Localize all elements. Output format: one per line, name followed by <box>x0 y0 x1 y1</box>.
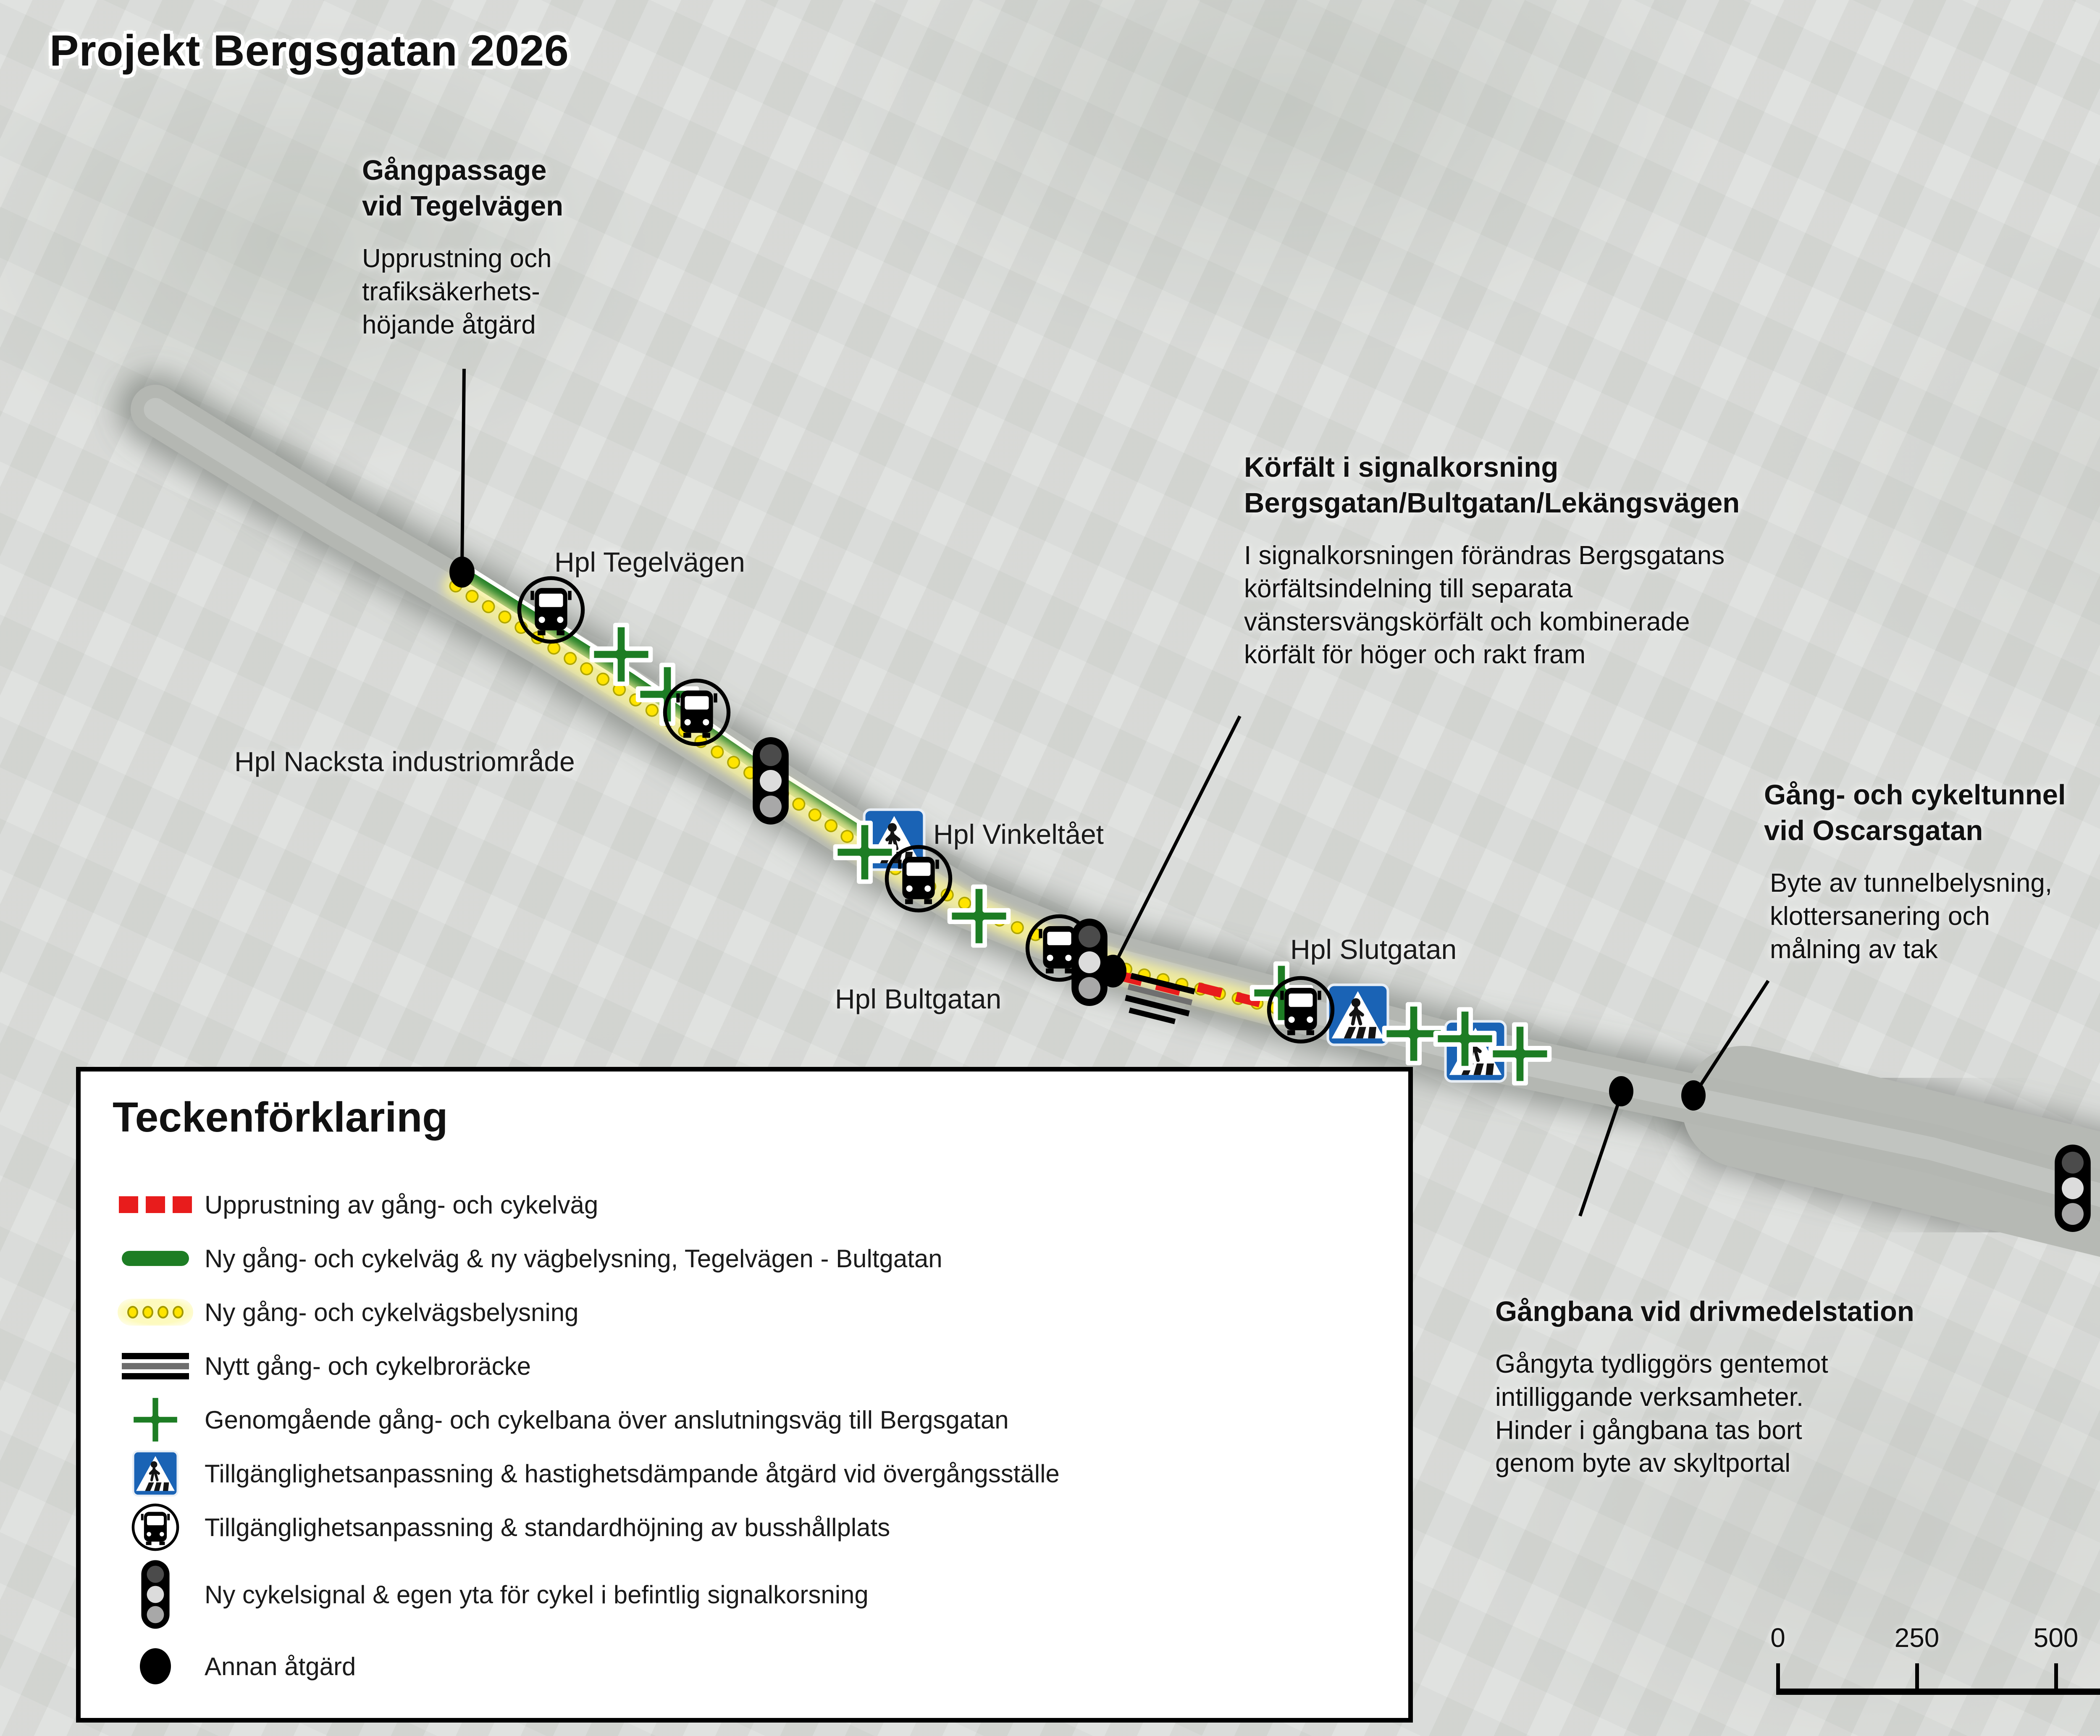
red-dashed-line-symbol <box>106 1196 205 1213</box>
railing-lines-symbol <box>106 1353 205 1379</box>
scale-tick <box>1776 1663 1780 1692</box>
annotation-gangbana: Gångbana vid drivmedelstation Gångyta ty… <box>1495 1286 1914 1488</box>
legend-item-label: Ny gång- och cykelvägsbelysning <box>205 1298 578 1327</box>
annotation-body: Gångyta tydliggörs gentemot intilliggand… <box>1495 1348 1914 1480</box>
project-map: Projekt Bergsgatan 2026 Gångpassage vid … <box>0 0 2100 1736</box>
scale-tick <box>1915 1663 1919 1692</box>
stop-label-tegelvagen: Hpl Tegelvägen <box>554 546 745 578</box>
legend-item-label: Genomgående gång- och cykelbana över ans… <box>205 1405 1009 1434</box>
green-line-symbol <box>106 1251 205 1266</box>
scale-baseline <box>1776 1689 2100 1695</box>
legend-item: Tillgänglighetsanpassning & hastighetsdä… <box>106 1447 1383 1500</box>
crosswalk-sign-icon <box>1328 985 1388 1045</box>
scale-label: 250 <box>1895 1622 1940 1653</box>
legend-box: Teckenförklaring Upprustning av gång- oc… <box>76 1067 1413 1723</box>
annotation-heading: Gång- och cykeltunnel vid Oscarsgatan <box>1764 777 2066 848</box>
stop-label-nacksta: Hpl Nacksta industriområde <box>234 746 575 777</box>
measure-dot <box>1681 1080 1706 1111</box>
annotation-body: Upprustning och trafiksäkerhets- höjande… <box>362 242 563 341</box>
legend-item: Tillgänglighetsanpassning & standardhöjn… <box>106 1500 1383 1554</box>
legend-title: Teckenförklaring <box>113 1093 1383 1142</box>
legend-item-label: Ny gång- och cykelväg & ny vägbelysning,… <box>205 1244 942 1273</box>
page-title: Projekt Bergsgatan 2026 <box>50 26 569 76</box>
legend-item-label: Annan åtgärd <box>205 1652 356 1681</box>
annotation-heading: Gångbana vid drivmedelstation <box>1495 1294 1914 1329</box>
scale-tick <box>2054 1663 2058 1692</box>
annotation-body: Byte av tunnelbelysning, klottersanering… <box>1770 867 2066 966</box>
cycle-signal-icon <box>2055 1145 2091 1232</box>
scale-label: 0 <box>1770 1622 1785 1653</box>
legend-item: Ny gång- och cykelvägsbelysning <box>106 1285 1383 1339</box>
bus-icon-symbol <box>106 1502 205 1552</box>
annotation-heading: Körfält i signalkorsning Bergsgatan/Bult… <box>1244 449 1740 521</box>
legend-item: Upprustning av gång- och cykelväg <box>106 1178 1383 1232</box>
stop-label-vinkeltaet: Hpl Vinkeltået <box>933 818 1104 850</box>
legend-item: Ny gång- och cykelväg & ny vägbelysning,… <box>106 1232 1383 1285</box>
measure-dot <box>449 557 475 588</box>
scale-label: 500 <box>2034 1622 2079 1653</box>
legend-item-label: Nytt gång- och cykelbroräcke <box>205 1352 531 1381</box>
crosswalk-sign-symbol <box>106 1450 205 1497</box>
legend-item-label: Tillgänglighetsanpassning & standardhöjn… <box>205 1513 890 1542</box>
measure-dot <box>1100 955 1126 987</box>
yellow-dots-symbol <box>106 1299 205 1326</box>
black-dot-symbol <box>106 1648 205 1684</box>
annotation-gangpassage: Gångpassage vid Tegelvägen Upprustning o… <box>362 145 563 349</box>
annotation-korfalt: Körfält i signalkorsning Bergsgatan/Bult… <box>1244 442 1740 679</box>
annotation-tunnel: Gång- och cykeltunnel vid Oscarsgatan By… <box>1764 770 2066 974</box>
legend-item-label: Upprustning av gång- och cykelväg <box>205 1190 598 1219</box>
legend-item: Annan åtgärd <box>106 1635 1383 1698</box>
legend-item-label: Ny cykelsignal & egen yta för cykel i be… <box>205 1580 869 1609</box>
scale-bar: 0 250 500 750 1 000 m <box>1778 1622 2100 1698</box>
cycle-signal-icon <box>753 737 789 825</box>
stop-label-bultgatan: Hpl Bultgatan <box>835 983 1001 1015</box>
green-cross-symbol <box>106 1394 205 1445</box>
legend-item: Genomgående gång- och cykelbana över ans… <box>106 1393 1383 1447</box>
traffic-signal-symbol <box>106 1559 205 1630</box>
leader-gangpassage <box>462 369 464 568</box>
annotation-body: I signalkorsningen förändras Bergsgatans… <box>1244 539 1740 672</box>
legend-item: Ny cykelsignal & egen yta för cykel i be… <box>106 1554 1383 1635</box>
measure-dot <box>1609 1076 1633 1106</box>
leader-korfalt <box>1114 716 1240 966</box>
legend-item: Nytt gång- och cykelbroräcke <box>106 1339 1383 1393</box>
legend-item-label: Tillgänglighetsanpassning & hastighetsdä… <box>205 1459 1060 1488</box>
stop-label-slutgatan: Hpl Slutgatan <box>1290 933 1457 965</box>
annotation-heading: Gångpassage vid Tegelvägen <box>362 152 563 224</box>
